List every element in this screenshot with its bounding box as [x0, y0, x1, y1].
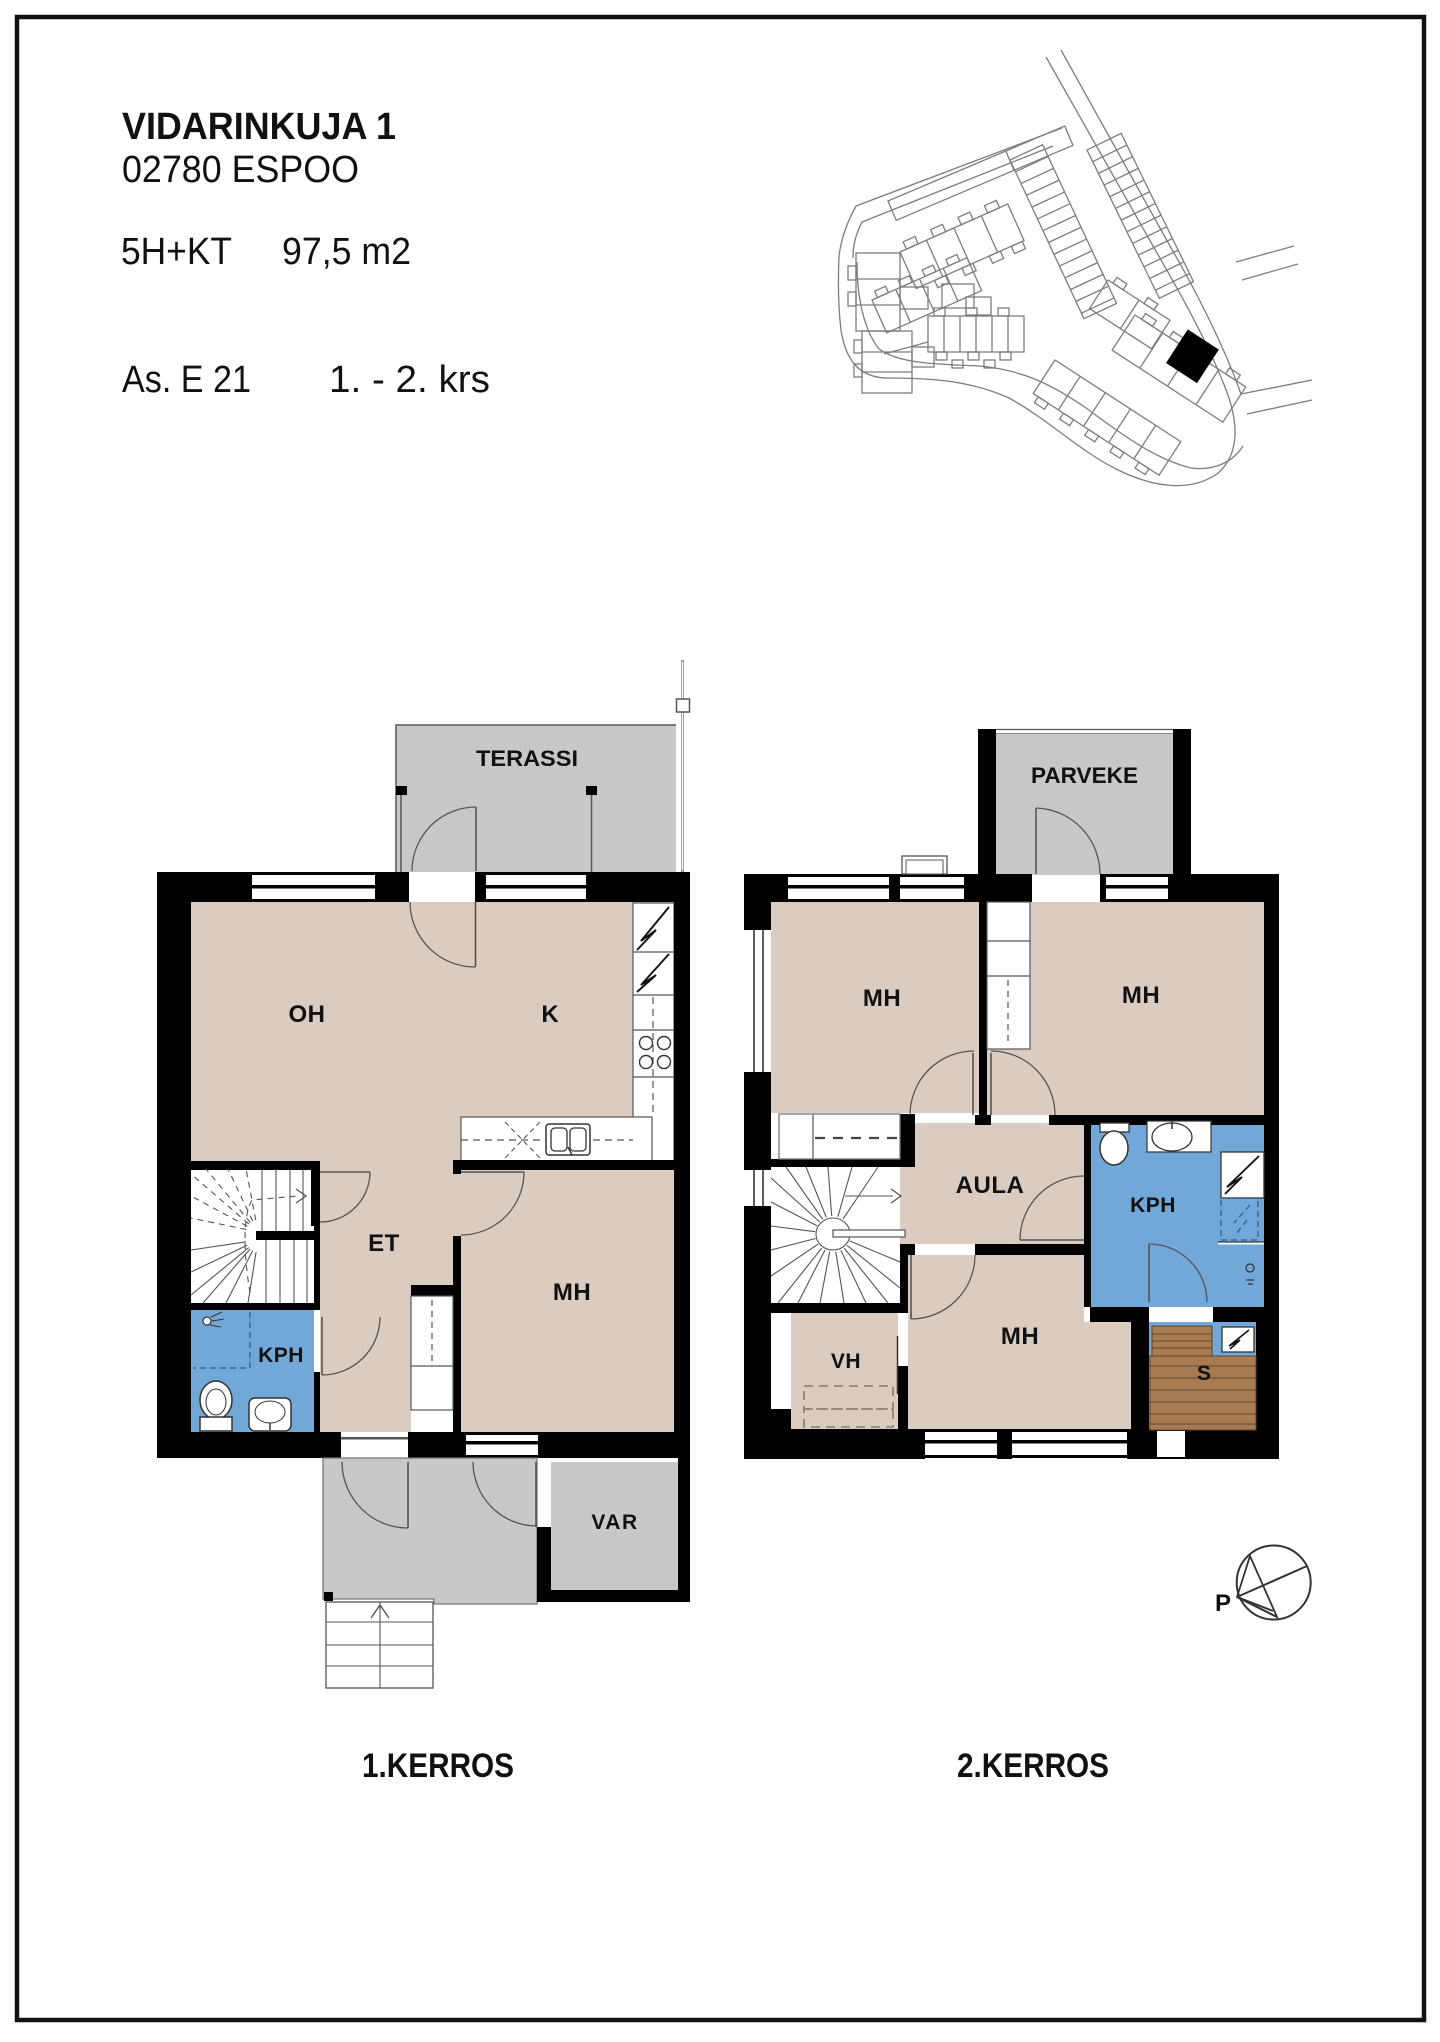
svg-text:97,5 m2: 97,5 m2: [282, 231, 411, 273]
svg-text:5H+KT: 5H+KT: [121, 231, 232, 273]
svg-text:VAR: VAR: [591, 1511, 638, 1534]
svg-text:KPH: KPH: [258, 1344, 304, 1367]
svg-text:S: S: [1197, 1362, 1211, 1385]
svg-text:As. E 21: As. E 21: [122, 359, 251, 401]
svg-text:2.KERROS: 2.KERROS: [957, 1747, 1109, 1785]
svg-text:VIDARINKUJA 1: VIDARINKUJA 1: [122, 106, 396, 148]
svg-text:P: P: [1215, 1590, 1231, 1617]
svg-text:1.KERROS: 1.KERROS: [362, 1747, 514, 1785]
svg-text:1. - 2. krs: 1. - 2. krs: [329, 359, 490, 401]
svg-text:VH: VH: [831, 1350, 861, 1373]
svg-text:02780 ESPOO: 02780 ESPOO: [122, 149, 359, 191]
svg-text:AULA: AULA: [956, 1172, 1025, 1199]
svg-text:MH: MH: [553, 1279, 591, 1306]
svg-text:K: K: [541, 1001, 559, 1028]
svg-text:PARVEKE: PARVEKE: [1031, 763, 1138, 788]
svg-text:OH: OH: [289, 1001, 326, 1028]
svg-text:MH: MH: [863, 985, 901, 1012]
svg-text:KPH: KPH: [1130, 1194, 1176, 1217]
svg-text:MH: MH: [1122, 982, 1160, 1009]
svg-text:MH: MH: [1001, 1323, 1039, 1350]
svg-text:ET: ET: [368, 1230, 400, 1257]
svg-text:TERASSI: TERASSI: [476, 746, 578, 771]
